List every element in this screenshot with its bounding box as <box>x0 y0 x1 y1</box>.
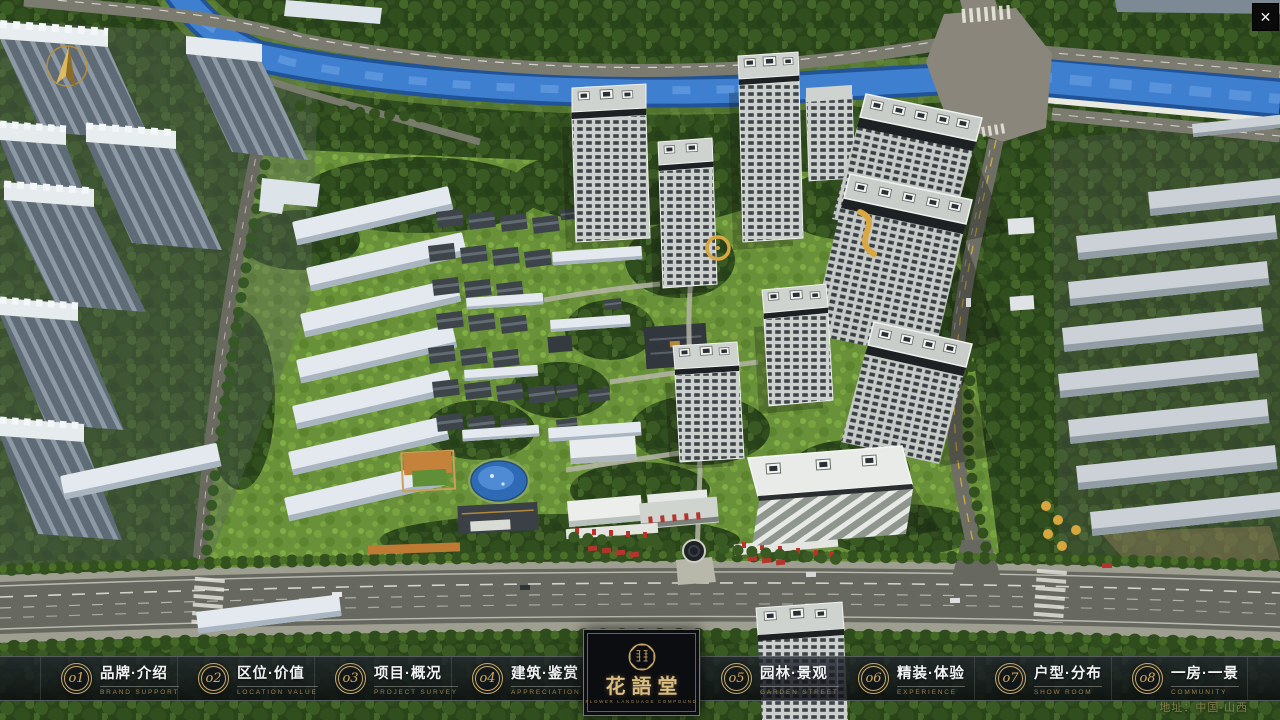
nav-item-label: 一房·一景 <box>1171 662 1239 687</box>
nav-item-room-view[interactable]: o8 一房·一景 COMMUNITY <box>1111 657 1248 700</box>
nav-number-badge: o5 <box>721 663 752 694</box>
nav-item-sublabel: BRAND SUPPORT <box>100 689 179 696</box>
logo-title: 花語堂 <box>600 676 684 696</box>
seal-emblem-icon <box>626 641 658 673</box>
presentation-window: ✕ o1 品牌·介绍 BRAND SUPPORT o2 区位·价值 LOCATI… <box>0 0 1280 720</box>
nav-item-interior-experience[interactable]: o6 精装·体验 EXPERIENCE <box>837 657 974 700</box>
nav-item-garden-landscape[interactable]: o5 园林·景观 GARDEN STREET <box>700 657 837 700</box>
address-label: 地址：中国·山西 <box>1159 699 1248 715</box>
nav-item-label: 项目·概况 <box>374 662 458 687</box>
close-button[interactable]: ✕ <box>1252 3 1279 31</box>
nav-item-sublabel: PROJECT SURVEY <box>374 689 458 696</box>
nav-item-brand-intro[interactable]: o1 品牌·介绍 BRAND SUPPORT <box>40 657 177 700</box>
logo-subtitle: FLOWER LANGUAGE COMPOUND <box>586 699 698 704</box>
nav-item-sublabel: SHOW ROOM <box>1034 689 1102 696</box>
nav-item-label: 品牌·介绍 <box>100 662 179 687</box>
nav-item-label: 园林·景观 <box>760 662 839 687</box>
nav-item-sublabel: EXPERIENCE <box>897 689 965 696</box>
nav-number-badge: o7 <box>995 663 1026 694</box>
nav-number-badge: o4 <box>472 663 503 694</box>
nav-item-sublabel: LOCATION VALUE <box>237 689 318 696</box>
logo-inner-frame: 花語堂 FLOWER LANGUAGE COMPOUND <box>587 633 696 712</box>
nav-item-sublabel: APPRECIATION <box>511 689 581 696</box>
nav-item-project-overview[interactable]: o3 项目·概况 PROJECT SURVEY <box>314 657 451 700</box>
nav-item-sublabel: COMMUNITY <box>1171 689 1239 696</box>
nav-item-floorplan-distribution[interactable]: o7 户型·分布 SHOW ROOM <box>974 657 1111 700</box>
nav-item-sublabel: GARDEN STREET <box>760 689 839 696</box>
nav-item-label: 户型·分布 <box>1034 662 1102 687</box>
nav-number-badge: o1 <box>61 663 92 694</box>
nav-item-label: 建筑·鉴赏 <box>511 662 581 687</box>
nav-number-badge: o3 <box>335 663 366 694</box>
nav-item-location-value[interactable]: o2 区位·价值 LOCATION VALUE <box>177 657 314 700</box>
nav-item-architecture[interactable]: o4 建筑·鉴赏 APPRECIATION <box>451 657 588 700</box>
logo-panel[interactable]: 花語堂 FLOWER LANGUAGE COMPOUND <box>583 629 700 716</box>
nav-item-label: 精装·体验 <box>897 662 965 687</box>
nav-number-badge: o8 <box>1132 663 1163 694</box>
nav-number-badge: o2 <box>198 663 229 694</box>
nav-number-badge: o6 <box>858 663 889 694</box>
nav-item-label: 区位·价值 <box>237 662 318 687</box>
site-masterplan-render[interactable] <box>0 0 1280 720</box>
